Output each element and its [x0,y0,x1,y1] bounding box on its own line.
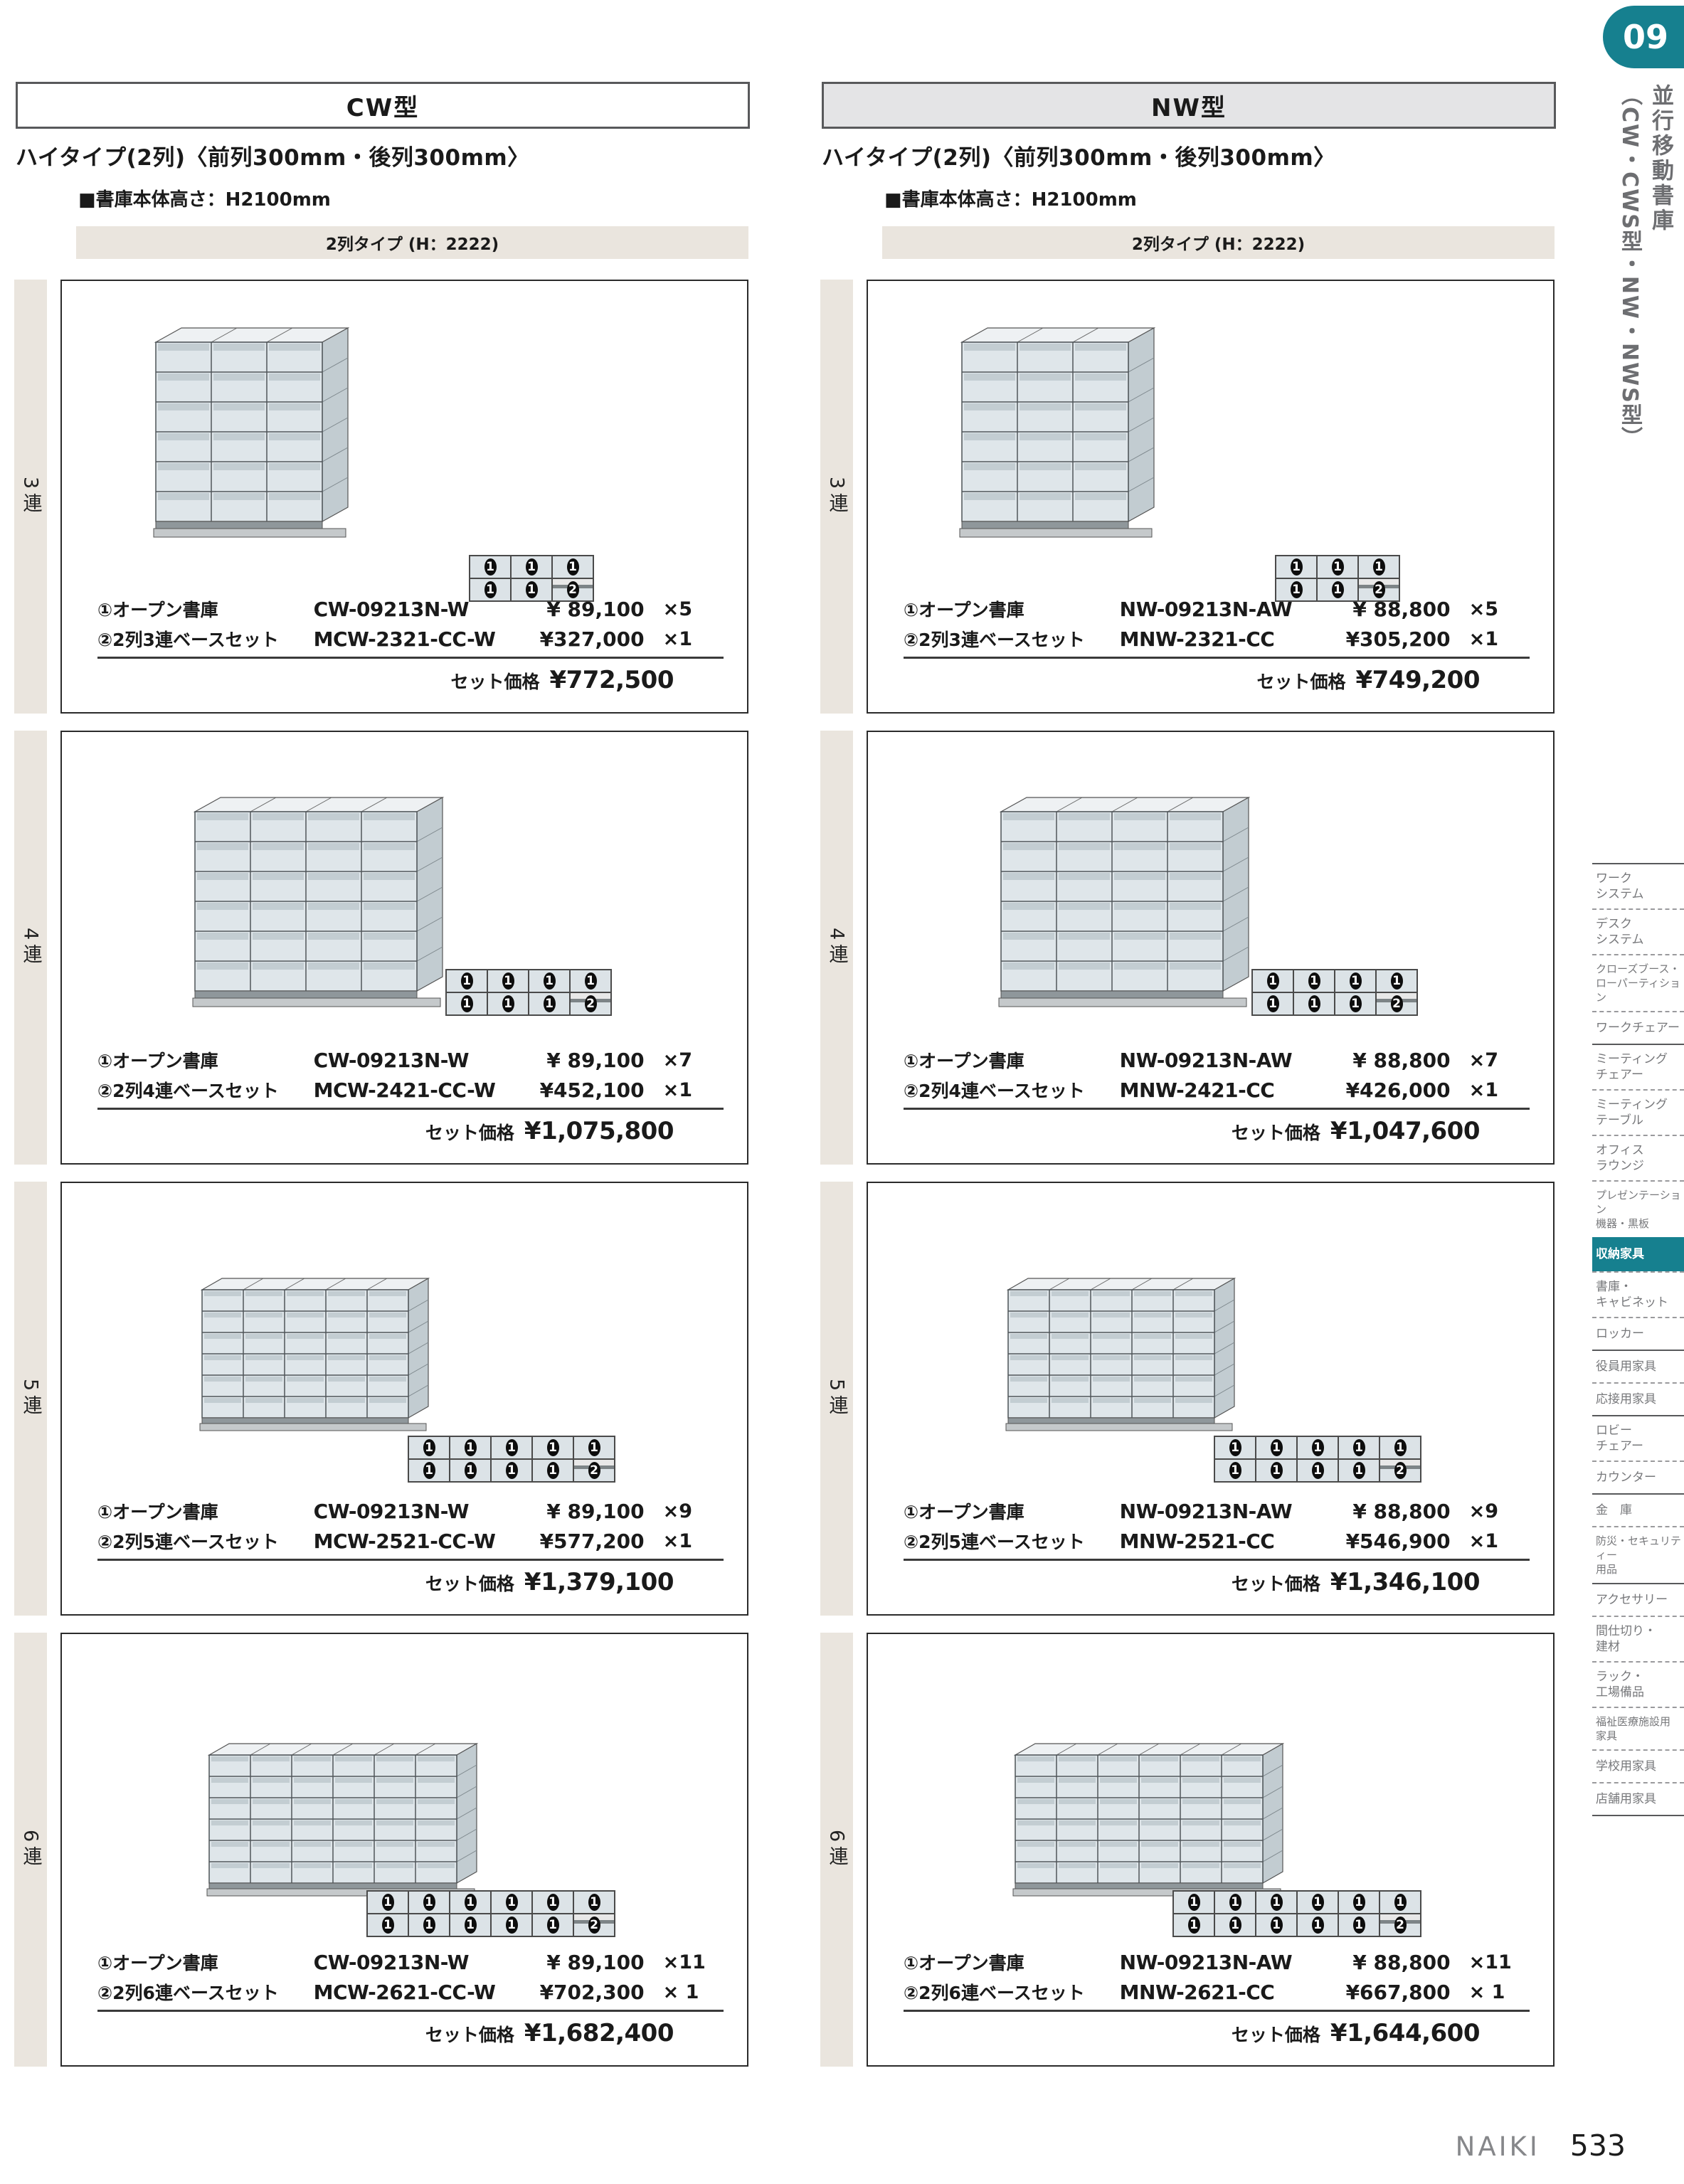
unit-badge: 1 [547,1917,559,1934]
unit-badge: 1 [506,1439,518,1456]
item-price: ¥305,200 [1322,627,1450,651]
category-sidebar: ワーク システムデスク システムクローズブース・ ローパーティションワークチェア… [1592,863,1684,1816]
type-bar: 2列タイプ (H：2222) [76,226,748,259]
set-price-value: ¥1,644,600 [1330,2019,1480,2047]
plan-cell: 1 [1256,1891,1297,1914]
set-price-label: セット価格 [425,1574,514,1594]
set-price-row: セット価格¥1,346,100 [904,1568,1530,1596]
shelving-illustration [1012,1741,1287,1903]
row-count-label: 5連 [823,1379,851,1419]
section-title-sub: （CW・CWS型・NW・NWS型） [1614,84,1645,767]
price-item-row: ①オープン書庫 CW-09213N-W ¥ 89,100 ×5 [97,594,724,624]
unit-badge: 1 [1308,995,1320,1012]
price-table: ①オープン書庫 NW-09213N-AW ¥ 88,800 ×11 ②2列6連ベ… [904,1947,1530,2047]
sidebar-item[interactable]: 金 庫 [1592,1495,1684,1526]
item-code: MNW-2321-CC [1120,627,1323,651]
set-price-value: ¥1,346,100 [1330,1568,1480,1596]
row-count-label: 6連 [17,1830,45,1870]
plan-cell: 1 [532,1914,573,1936]
sidebar-item[interactable]: 防災・セキュリティー 用品 [1592,1527,1684,1583]
unit-badge: 1 [1308,972,1320,990]
unit-badge: 1 [1373,558,1385,576]
item-label: ①オープン書庫 [97,1949,314,1975]
unit-badge: 1 [1353,1894,1365,1911]
item-quantity: ×11 [645,1951,724,1973]
unit-badge: 1 [1188,1917,1200,1934]
plan-row: 111 [470,556,593,578]
sidebar-item[interactable]: 書庫・ キャビネット [1592,1273,1684,1317]
product-block: 4連 11111112 ①オープン書庫 NW-09213N-AW ¥ 88,80… [820,731,1557,1165]
shelving-illustration [1005,1276,1239,1438]
plan-cell: 1 [1173,1891,1214,1914]
sidebar-item[interactable]: プレゼンテーション 機器・黒板 [1592,1182,1684,1237]
price-item-row: ①オープン書庫 NW-09213N-AW ¥ 88,800 ×11 [904,1947,1530,1977]
product-box: 111112 ①オープン書庫 NW-09213N-AW ¥ 88,800 ×5 … [867,280,1555,714]
item-code: NW-09213N-AW [1120,1500,1323,1523]
plan-cell: 1 [573,1891,615,1914]
unit-badge: 1 [1271,1917,1283,1934]
item-price: ¥577,200 [516,1530,644,1553]
type-header: CW型 [16,82,750,129]
price-divider [97,2010,724,2012]
price-item-row: ②2列5連ベースセット MCW-2521-CC-W ¥577,200 ×1 [97,1526,724,1556]
shelving-illustration [153,325,352,546]
row-count-strip: 5連 [820,1182,853,1616]
set-price-label: セット価格 [1232,2025,1320,2045]
set-price-value: ¥1,047,600 [1330,1117,1480,1145]
row-count-strip: 6連 [14,1633,47,2067]
catalog-column-cw: CW型 ハイタイプ(2列)〈前列300mm・後列300mm〉 ■書庫本体高さ：H… [14,0,751,2106]
unit-badge: 1 [1229,1894,1241,1911]
unit-badge: 2 [1394,1917,1407,1934]
row-count-strip: 6連 [820,1633,853,2067]
sidebar-item[interactable]: ロビー チェアー [1592,1416,1684,1461]
set-price-row: セット価格¥772,500 [97,666,724,694]
unit-badge: 1 [423,1439,435,1456]
sidebar-item[interactable]: ミーティング テーブル [1592,1091,1684,1135]
unit-badge: 1 [1267,995,1279,1012]
price-table: ①オープン書庫 CW-09213N-W ¥ 89,100 ×7 ②2列4連ベース… [97,1045,724,1145]
plan-cell: 1 [1252,970,1293,992]
plan-cell: 1 [1214,1891,1256,1914]
item-quantity: ×1 [1451,628,1530,650]
plan-cell: 1 [491,1914,532,1936]
item-code: CW-09213N-W [314,1049,517,1072]
plan-cell: 2 [573,1914,615,1936]
plan-cell: 1 [491,1436,532,1459]
item-quantity: ×5 [1451,598,1530,620]
catalog-column-nw: NW型 ハイタイプ(2列)〈前列300mm・後列300mm〉 ■書庫本体高さ：H… [820,0,1557,2106]
plan-cell: 1 [1376,970,1417,992]
price-divider [904,657,1530,659]
item-quantity: ×1 [645,1530,724,1552]
plan-cell: 1 [491,1459,532,1482]
column-title: ハイタイプ(2列)〈前列300mm・後列300mm〉 [822,139,1336,171]
item-price: ¥702,300 [516,1981,644,2004]
item-quantity: ×7 [1451,1049,1530,1071]
sidebar-divider [1592,1815,1684,1816]
item-code: MNW-2421-CC [1120,1078,1323,1102]
item-code: MCW-2521-CC-W [314,1530,517,1553]
plan-cell: 2 [1379,1914,1421,1936]
price-item-row: ②2列3連ベースセット MNW-2321-CC ¥305,200 ×1 [904,624,1530,654]
unit-badge: 1 [465,1917,477,1934]
plan-row: 11112 [1214,1459,1421,1482]
sidebar-item[interactable]: ミーティング チェアー [1592,1045,1684,1089]
product-block: 6連 111111111112 ①オープン書庫 NW-09213N-AW ¥ 8… [820,1633,1557,2067]
item-code: MNW-2621-CC [1120,1981,1323,2004]
set-price-label: セット価格 [425,2025,514,2045]
item-label: ①オープン書庫 [904,1949,1120,1975]
product-box: 1111111112 ①オープン書庫 CW-09213N-W ¥ 89,100 … [60,1182,748,1616]
plan-cell: 1 [470,556,511,578]
unit-badge: 1 [1271,1439,1283,1456]
price-table: ①オープン書庫 CW-09213N-W ¥ 89,100 ×9 ②2列5連ベース… [97,1496,724,1596]
item-label: ①オープン書庫 [97,1047,314,1073]
unit-badge: 1 [1312,1462,1324,1479]
plan-cell: 1 [408,1914,450,1936]
layout-plan-diagram: 11111112 [1251,969,1418,1016]
item-label: ②2列5連ベースセット [904,1528,1120,1554]
unit-badge: 1 [585,972,597,990]
row-count-label: 3連 [17,477,45,516]
plan-cell: 1 [1297,1459,1338,1482]
item-price: ¥ 88,800 [1322,1951,1450,1974]
plan-cell: 1 [511,556,552,578]
plan-cell: 1 [1379,1436,1421,1459]
set-price-label: セット価格 [425,1123,514,1143]
shelving-illustration [192,795,447,1015]
sidebar-item[interactable]: ロッカー [1592,1318,1684,1350]
height-note: ■書庫本体高さ：H2100mm [884,185,1137,211]
sidebar-item[interactable]: 間仕切り・ 建材 [1592,1617,1684,1661]
item-price: ¥546,900 [1322,1530,1450,1553]
unit-badge: 1 [1188,1894,1200,1911]
plan-row: 111112 [1173,1914,1421,1936]
sidebar-item[interactable]: ワークチェアー [1592,1012,1684,1044]
unit-badge: 2 [588,1462,600,1479]
unit-badge: 1 [461,972,473,990]
unit-badge: 1 [461,995,473,1012]
item-label: ①オープン書庫 [904,1047,1120,1073]
item-code: CW-09213N-W [314,1500,517,1523]
plan-cell: 1 [1252,992,1293,1015]
plan-cell: 1 [1338,1459,1379,1482]
unit-badge: 1 [544,995,556,1012]
plan-cell: 1 [367,1914,408,1936]
item-price: ¥667,800 [1322,1981,1450,2004]
sidebar-item[interactable]: 学校用家具 [1592,1751,1684,1782]
item-code: MNW-2521-CC [1120,1530,1323,1553]
item-price: ¥327,000 [516,627,644,651]
item-label: ①オープン書庫 [97,596,314,622]
plan-cell: 1 [1358,556,1399,578]
unit-badge: 1 [588,1439,600,1456]
unit-badge: 1 [1394,1439,1407,1456]
plan-cell: 2 [1376,992,1417,1015]
plan-cell: 1 [408,1891,450,1914]
item-price: ¥426,000 [1322,1078,1450,1102]
price-table: ①オープン書庫 NW-09213N-AW ¥ 88,800 ×7 ②2列4連ベー… [904,1045,1530,1145]
plan-cell: 1 [450,1891,491,1914]
set-price-label: セット価格 [1232,1123,1320,1143]
item-price: ¥ 88,800 [1322,1049,1450,1072]
plan-row: 111111 [1173,1891,1421,1914]
type-header-label: NW型 [1151,88,1227,123]
chapter-number: 09 [1623,18,1668,56]
layout-plan-diagram: 1111111112 [408,1436,615,1483]
price-item-row: ①オープン書庫 CW-09213N-W ¥ 89,100 ×11 [97,1947,724,1977]
item-price: ¥ 88,800 [1322,1500,1450,1523]
row-count-strip: 4連 [14,731,47,1165]
price-divider [97,1559,724,1561]
type-header-label: CW型 [346,88,419,123]
row-count-strip: 3連 [14,280,47,714]
product-block: 3連 111112 ①オープン書庫 NW-09213N-AW ¥ 88,800 … [820,280,1557,714]
unit-badge: 1 [547,1894,559,1911]
row-count-label: 4連 [823,928,851,968]
item-code: NW-09213N-AW [1120,1951,1323,1974]
unit-badge: 1 [382,1917,394,1934]
item-quantity: ×1 [1451,1079,1530,1101]
price-item-row: ②2列5連ベースセット MNW-2521-CC ¥546,900 ×1 [904,1526,1530,1556]
product-block: 5連 1111111112 ①オープン書庫 CW-09213N-W ¥ 89,1… [14,1182,751,1616]
unit-badge: 1 [1353,1462,1365,1479]
price-divider [904,2010,1530,2012]
item-price: ¥ 89,100 [516,1500,644,1523]
unit-badge: 1 [1350,995,1362,1012]
set-price-label: セット価格 [1232,1574,1320,1594]
item-label: ①オープン書庫 [904,596,1120,622]
plan-row: 11112 [408,1459,615,1482]
unit-badge: 2 [588,1917,600,1934]
row-count-label: 6連 [823,1830,851,1870]
item-quantity: ×1 [645,628,724,650]
plan-cell: 1 [491,1891,532,1914]
unit-badge: 1 [567,558,579,576]
price-item-row: ①オープン書庫 NW-09213N-AW ¥ 88,800 ×7 [904,1045,1530,1075]
shelving-illustration [959,325,1158,546]
product-box: 111112 ①オープン書庫 CW-09213N-W ¥ 89,100 ×5 ②… [60,280,748,714]
unit-badge: 1 [1353,1917,1365,1934]
item-code: CW-09213N-W [314,598,517,621]
plan-cell: 1 [1293,992,1335,1015]
price-item-row: ②2列3連ベースセット MCW-2321-CC-W ¥327,000 ×1 [97,624,724,654]
page-footer: NAIKI 533 [1456,2129,1626,2163]
product-block: 4連 11111112 ①オープン書庫 CW-09213N-W ¥ 89,100… [14,731,751,1165]
product-block: 5連 1111111112 ①オープン書庫 NW-09213N-AW ¥ 88,… [820,1182,1557,1616]
page-number: 533 [1570,2129,1626,2163]
chapter-badge: 09 [1603,6,1684,68]
plan-row: 1112 [1252,992,1417,1015]
sidebar-item[interactable]: アクセサリー [1592,1584,1684,1616]
price-item-row: ②2列6連ベースセット MCW-2621-CC-W ¥702,300 × 1 [97,1977,724,2007]
plan-cell: 1 [1335,970,1376,992]
item-label: ②2列6連ベースセット [904,1979,1120,2005]
unit-badge: 1 [1267,972,1279,990]
item-label: ②2列6連ベースセット [97,1979,314,2005]
plan-cell: 1 [1379,1891,1421,1914]
plan-cell: 1 [446,992,487,1015]
item-quantity: ×1 [645,1079,724,1101]
shelving-illustration [199,1276,433,1438]
item-label: ①オープン書庫 [904,1498,1120,1524]
item-label: ②2列3連ベースセット [904,626,1120,652]
unit-badge: 2 [585,995,597,1012]
item-price: ¥ 88,800 [1322,598,1450,621]
type-header: NW型 [822,82,1556,129]
sidebar-item[interactable]: 役員用家具 [1592,1351,1684,1382]
unit-badge: 1 [1332,558,1344,576]
unit-badge: 2 [1391,995,1403,1012]
item-label: ②2列5連ベースセット [97,1528,314,1554]
plan-row: 1112 [446,992,611,1015]
item-label: ②2列4連ベースセット [904,1077,1120,1103]
height-note: ■書庫本体高さ：H2100mm [78,185,331,211]
sidebar-item[interactable]: 福祉医療施設用 家具 [1592,1708,1684,1749]
plan-cell: 1 [1338,1891,1379,1914]
plan-cell: 1 [529,970,570,992]
sidebar-item[interactable]: 収納家具 [1592,1237,1684,1271]
plan-cell: 1 [1338,1436,1379,1459]
price-item-row: ①オープン書庫 NW-09213N-AW ¥ 88,800 ×9 [904,1496,1530,1526]
sidebar-item[interactable]: 店舗用家具 [1592,1783,1684,1815]
unit-badge: 1 [1391,972,1403,990]
unit-badge: 1 [382,1894,394,1911]
plan-cell: 1 [1214,1914,1256,1936]
unit-badge: 1 [1291,558,1303,576]
unit-badge: 1 [544,972,556,990]
catalog-page: 09 並行移動書庫 （CW・CWS型・NW・NWS型） CW型 ハイタイプ(2列… [0,0,1684,2184]
plan-cell: 1 [1297,1914,1338,1936]
plan-cell: 2 [573,1459,615,1482]
price-item-row: ②2列4連ベースセット MNW-2421-CC ¥426,000 ×1 [904,1075,1530,1105]
sidebar-item[interactable]: 応接用家具 [1592,1384,1684,1415]
plan-row: 1111 [446,970,611,992]
plan-cell: 1 [1317,556,1358,578]
plan-cell: 1 [408,1459,450,1482]
shelving-illustration [206,1741,481,1903]
plan-cell: 1 [532,1436,573,1459]
sidebar-item[interactable]: ワーク システム [1592,864,1684,908]
row-count-strip: 5連 [14,1182,47,1616]
price-divider [904,1559,1530,1561]
item-price: ¥ 89,100 [516,598,644,621]
item-code: CW-09213N-W [314,1951,517,1974]
product-box: 111111111112 ①オープン書庫 CW-09213N-W ¥ 89,10… [60,1633,748,2067]
product-block: 3連 111112 ①オープン書庫 CW-09213N-W ¥ 89,100 ×… [14,280,751,714]
set-price-value: ¥1,682,400 [524,2019,674,2047]
product-box: 1111111112 ①オープン書庫 NW-09213N-AW ¥ 88,800… [867,1182,1555,1616]
unit-badge: 1 [465,1439,477,1456]
unit-badge: 1 [1312,1894,1324,1911]
unit-badge: 1 [423,1462,435,1479]
plan-cell: 1 [1173,1914,1214,1936]
item-quantity: × 1 [645,1981,724,2003]
price-item-row: ①オープン書庫 NW-09213N-AW ¥ 88,800 ×5 [904,594,1530,624]
item-code: MCW-2421-CC-W [314,1078,517,1102]
item-code: MCW-2321-CC-W [314,627,517,651]
item-code: NW-09213N-AW [1120,1049,1323,1072]
item-quantity: × 1 [1451,1981,1530,2003]
plan-cell: 1 [1256,1914,1297,1936]
plan-cell: 2 [1379,1459,1421,1482]
price-table: ①オープン書庫 NW-09213N-AW ¥ 88,800 ×5 ②2列3連ベー… [904,594,1530,694]
plan-cell: 1 [1297,1436,1338,1459]
plan-row: 111112 [367,1914,615,1936]
unit-badge: 1 [1229,1439,1241,1456]
product-box: 11111112 ①オープン書庫 CW-09213N-W ¥ 89,100 ×7… [60,731,748,1165]
unit-badge: 1 [526,558,538,576]
unit-badge: 1 [484,558,497,576]
price-table: ①オープン書庫 NW-09213N-AW ¥ 88,800 ×9 ②2列5連ベー… [904,1496,1530,1596]
price-item-row: ①オープン書庫 CW-09213N-W ¥ 89,100 ×7 [97,1045,724,1075]
product-box: 11111112 ①オープン書庫 NW-09213N-AW ¥ 88,800 ×… [867,731,1555,1165]
row-count-label: 3連 [823,477,851,516]
sidebar-item[interactable]: デスク システム [1592,910,1684,954]
plan-row: 11111 [408,1436,615,1459]
row-count-strip: 3連 [820,280,853,714]
plan-cell: 1 [1276,556,1317,578]
plan-row: 111111 [367,1891,615,1914]
shelving-illustration [998,795,1253,1015]
plan-cell: 2 [570,992,611,1015]
plan-cell: 1 [1293,970,1335,992]
item-code: MCW-2621-CC-W [314,1981,517,2004]
price-divider [97,1108,724,1110]
sidebar-item[interactable]: オフィス ラウンジ [1592,1136,1684,1180]
row-count-strip: 4連 [820,731,853,1165]
set-price-value: ¥1,379,100 [524,1568,674,1596]
type-bar: 2列タイプ (H：2222) [882,226,1555,259]
price-item-row: ①オープン書庫 CW-09213N-W ¥ 89,100 ×9 [97,1496,724,1526]
plan-cell: 1 [1338,1914,1379,1936]
sidebar-item[interactable]: ラック・ 工場備品 [1592,1663,1684,1707]
column-title: ハイタイプ(2列)〈前列300mm・後列300mm〉 [16,139,530,171]
plan-cell: 1 [1256,1459,1297,1482]
row-count-label: 4連 [17,928,45,968]
plan-row: 111 [1276,556,1399,578]
layout-plan-diagram: 1111111112 [1214,1436,1421,1483]
unit-badge: 1 [1229,1917,1241,1934]
unit-badge: 1 [1350,972,1362,990]
unit-badge: 1 [1229,1462,1241,1479]
price-divider [904,1108,1530,1110]
set-price-value: ¥749,200 [1355,666,1480,694]
unit-badge: 1 [1312,1917,1324,1934]
set-price-row: セット価格¥749,200 [904,666,1530,694]
plan-cell: 1 [408,1436,450,1459]
unit-badge: 1 [1312,1439,1324,1456]
product-box: 111111111112 ①オープン書庫 NW-09213N-AW ¥ 88,8… [867,1633,1555,2067]
set-price-label: セット価格 [450,672,539,692]
set-price-row: セット価格¥1,379,100 [97,1568,724,1596]
sidebar-item[interactable]: カウンター [1592,1462,1684,1493]
item-label: ①オープン書庫 [97,1498,314,1524]
unit-badge: 1 [465,1894,477,1911]
plan-cell: 1 [487,992,529,1015]
plan-cell: 1 [450,1459,491,1482]
layout-plan-diagram: 11111112 [445,969,612,1016]
price-table: ①オープン書庫 CW-09213N-W ¥ 89,100 ×11 ②2列6連ベー… [97,1947,724,2047]
item-price: ¥452,100 [516,1078,644,1102]
plan-cell: 1 [446,970,487,992]
plan-cell: 1 [1214,1459,1256,1482]
set-price-label: セット価格 [1256,672,1345,692]
sidebar-item[interactable]: クローズブース・ ローパーティション [1592,955,1684,1011]
plan-cell: 1 [532,1459,573,1482]
unit-badge: 1 [588,1894,600,1911]
